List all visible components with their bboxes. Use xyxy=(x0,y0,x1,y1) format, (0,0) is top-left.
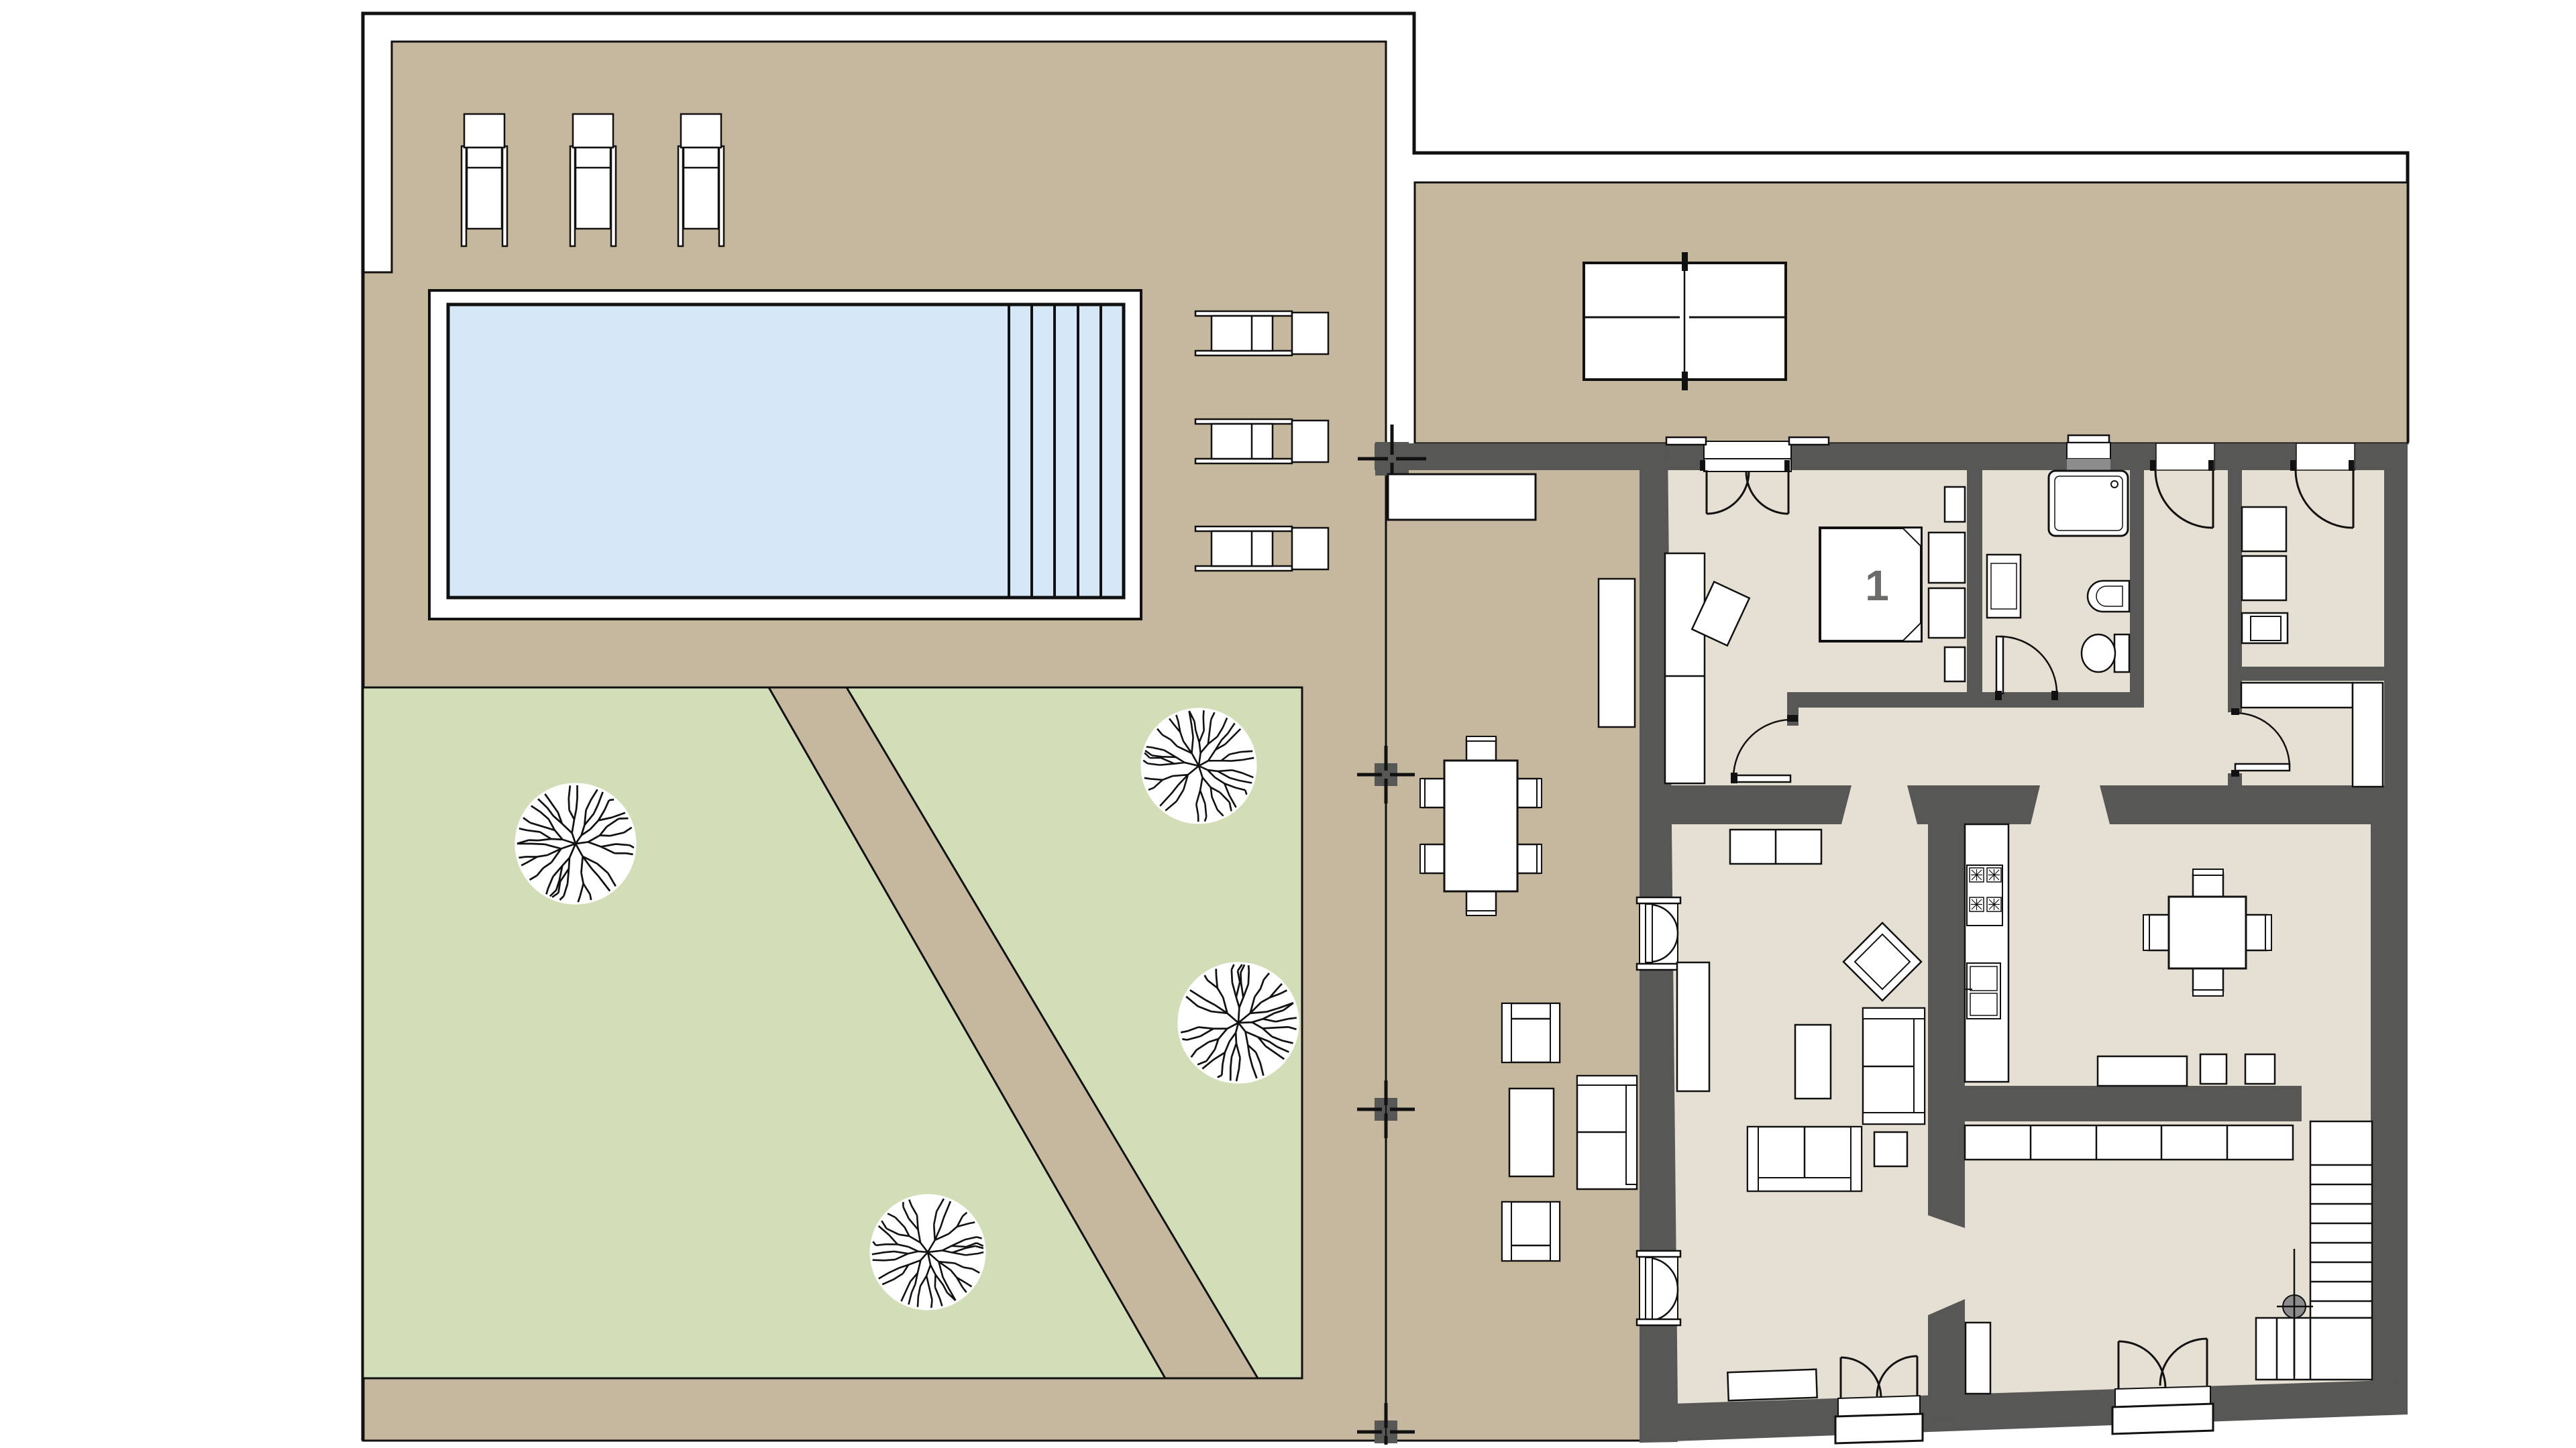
svg-text:1: 1 xyxy=(1865,561,1889,610)
